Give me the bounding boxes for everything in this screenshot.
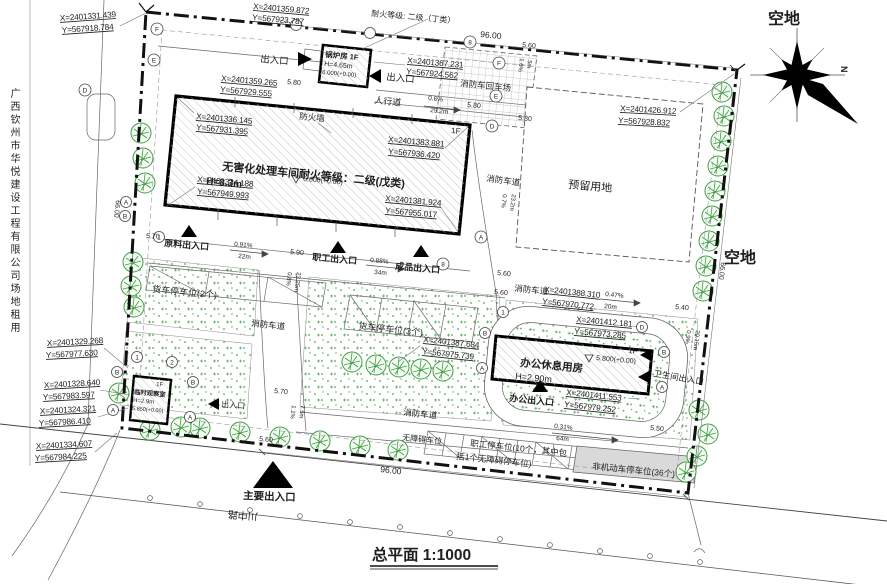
tree-icon [388,440,408,460]
entrance-label: 出入口 [386,71,415,85]
coord-label: Y=567983.597 [43,389,96,402]
grid-label: 1 [135,355,139,362]
slope-length: 22m [238,253,251,261]
tree-icon [708,156,728,176]
grid-bubble: A [185,412,196,423]
spot-elevation: 5.80 [287,79,301,87]
slope-value: 0.31% [554,423,573,432]
spot-elevation: 5.60 [259,436,273,444]
entrance-arrow-icon [330,241,346,253]
slope-value: 0.91% [234,241,253,250]
road-name-label: 川中路 [227,508,258,524]
spot-elevation: 5.60 [522,42,536,50]
slope-length: 29.2m [430,107,449,116]
spot-elevation: 5.90 [290,249,304,257]
vacant-land-label-top: 空地 [768,9,800,28]
coord-label: X=2401334.607 [36,438,93,451]
spot-elevation: 5.40 [675,304,689,312]
company-side-note-wrap: 广西钦州市华悦建设工程有限公司场地租用 [8,88,32,428]
sidewalk-label: 人行道 [374,94,402,108]
grid-label: B [483,331,487,338]
grid-label: 8 [441,262,445,269]
spot-elevation: 5.70 [274,388,288,396]
tree-icon [433,361,453,381]
fire-lane-label: 消防车道 [486,173,522,188]
grid-label: D [490,124,495,131]
fire-lane-label: 消防车道 [251,318,286,332]
grid-bubble: 8 [464,36,476,48]
slope-value: 1.1% [288,405,296,420]
grid-label: A [479,235,484,242]
grid-bubble: A [477,363,488,374]
grid-bubble: B [480,328,491,339]
staff-entrance-label: 职工出入口 [312,251,358,266]
tree-icon [411,359,431,379]
tree-icon [124,297,144,317]
tree-icon [350,436,370,456]
grid-bubble: 1 [498,307,509,318]
grid-label: A [111,408,116,415]
observation-floor: 1F [156,382,164,389]
entrance-arrow-icon [181,225,197,237]
product-entrance-label: 成品出入口 [395,260,441,275]
slope-length: 34m [374,269,387,277]
grid-bubble: B [188,377,199,388]
grid-label: A [188,415,193,422]
fire-rating-note: 耐火等级: 二级（丁类） [371,8,456,25]
entrance-arrow-icon [298,52,312,66]
grid-label: 1 [501,310,505,317]
slope-length: 7.5m [297,405,305,419]
material-entrance-label: 原料出入口 [164,237,210,252]
entrance-label: 出入口 [221,399,246,411]
tree-icon [342,352,362,372]
spot-elevation: 5.50 [650,425,664,433]
spot-elevation: 5.70 [146,233,160,241]
spot-elevation: 5.60 [497,270,511,278]
tree-icon [676,462,696,482]
grid-bubble: 2 [167,357,178,368]
north-label: N [839,66,849,73]
coord-label: X=2401329.268 [47,335,104,348]
grid-label: F [155,27,159,34]
grid-bubble [365,28,376,39]
grid-label: D [640,325,645,332]
grid-label: E [494,94,499,101]
coord-label: Y=567984.225 [35,450,88,463]
grid-bubble: D [79,84,91,96]
spot-elevation: 5.60 [494,289,508,297]
grid-label: B [662,350,666,357]
grid-label: B [123,214,127,221]
north-arrow: N [750,28,858,124]
coord-label: X=2401328.640 [44,377,101,390]
accessible-parking-label: 无障碍车位 [402,432,443,446]
slope-length: 64m [556,435,569,443]
slope-length: 20m [604,303,617,311]
coord-label: Y=567918.784 [61,21,114,35]
compass-pointer-icon [799,77,858,124]
coord-label: Y=567986.410 [39,415,92,428]
tree-icon [123,252,143,272]
grid-bubble: B [120,211,131,222]
slope-length: 5m [525,60,532,69]
tree-icon [131,123,151,143]
grid-label: F [497,61,501,68]
entrance-label: 出入口 [260,53,289,67]
dimension-label: 66.00 [112,200,121,218]
grid-bubble: D [637,322,648,333]
dimension-label: 66.00 [717,262,726,280]
grid-bubble: D [486,120,498,132]
grid-bubble: A [121,197,132,208]
tree-icon [366,355,386,375]
grid-label: D [83,88,88,95]
grid-label: B [115,370,119,377]
grid-bubble: A [475,231,487,243]
grid-bubble: E [148,54,160,66]
slope-value: 0.7% [499,194,507,209]
grid-label: A [480,366,485,373]
dimension-label: 96.00 [480,29,502,41]
entrance-arrow-icon [413,245,429,257]
grid-label: B [191,380,195,387]
grid-label: 8 [468,40,472,47]
main-entrance-label: 主要出入口 [243,489,296,504]
grid-bubble: B [112,367,123,378]
spot-elevation: 5.80 [518,115,532,123]
tree-icon [389,357,409,377]
slope-value: 0.6% [428,95,444,104]
entrance-arrow-icon [369,69,381,83]
vacant-land-label-right: 空地 [724,248,756,267]
grid-bubble: B [659,347,670,358]
grid-bubble: F [493,57,505,69]
spot-elevation: 5.80 [467,102,481,110]
slope-value: 0.88% [370,257,389,266]
slope-length: 23.25m [293,272,301,293]
slope-value: 0.47% [605,291,624,300]
grid-bubble: A [108,405,119,416]
grid-bubble: 1 [132,352,143,363]
slope-value: 0.8% [284,272,292,287]
slope-length: 23.2m [508,194,516,211]
workshop-floor: 1F [451,126,461,136]
company-side-note: 广西钦州市华悦建设工程有限公司场地租用 [8,88,18,335]
grid-bubble: F [151,23,163,35]
dimension-label: 96.00 [380,464,403,476]
grid-label: E [152,58,157,65]
tree-icon [310,431,330,451]
office-floor: 1F [628,346,638,356]
grid-label: A [124,200,129,207]
grid-bubble: A [657,382,668,393]
drawing-title: 总平面 1:1000 [372,545,471,564]
main-entrance-arrow-icon [253,461,293,488]
site-plan-drawing: F E D A B 1 8 F E D A 8 1 B D B A A 1 2 … [0,0,887,584]
grid-label: 2 [170,360,174,367]
grid-label: A [660,385,665,392]
